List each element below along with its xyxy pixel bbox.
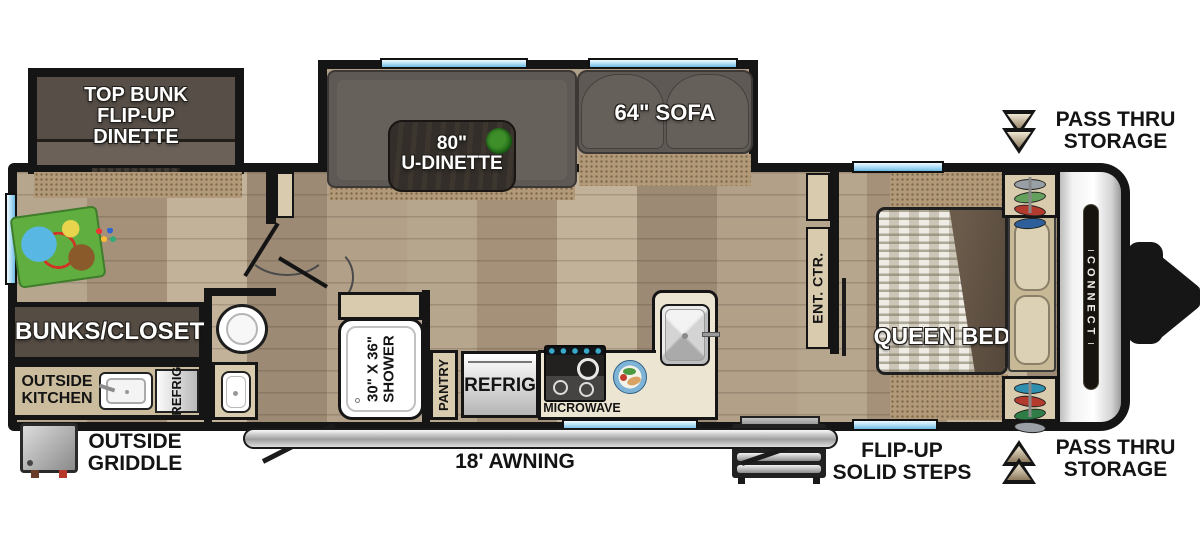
bedroom-carpet-bottom	[890, 374, 1008, 420]
bunks-closet-label: BUNKS/CLOSET	[15, 320, 199, 345]
sofa-label: 64" SOFA	[579, 102, 751, 125]
bath-wall-right	[422, 290, 430, 422]
queen-bed-label: QUEEN BED	[862, 325, 1022, 349]
arrow-up-icon	[1002, 458, 1036, 484]
pantry: PANTRY	[430, 350, 458, 420]
bath-vanity	[212, 362, 258, 420]
window-dinette	[380, 58, 528, 69]
mat-confetti	[96, 228, 116, 244]
queen-bed	[876, 207, 1008, 375]
play-mat	[9, 205, 106, 289]
bedroom-wall	[830, 172, 839, 354]
burner-small-icon	[579, 382, 594, 397]
wardrobe-top	[1002, 172, 1058, 218]
wardrobe-pole-icon	[1029, 177, 1032, 213]
pillow	[1014, 221, 1050, 291]
outside-refrig: REFRIG	[155, 369, 199, 413]
steps-label: FLIP-UP SOLID STEPS	[832, 440, 972, 484]
bath-sink	[221, 371, 251, 413]
sofa: 64" SOFA	[577, 70, 753, 154]
outside-sink	[99, 372, 153, 410]
pantry-label: PANTRY	[437, 359, 451, 411]
burner-small-icon	[553, 380, 568, 395]
bath-wall-top	[204, 288, 276, 296]
plant-icon	[486, 128, 512, 154]
outside-kitchen: OUTSIDE KITCHEN REFRIG	[10, 362, 204, 420]
awning-label: 18' AWNING	[440, 451, 590, 473]
pillow	[1014, 295, 1050, 365]
brand-badge: CONNECT	[1083, 204, 1099, 390]
ent-ctr-cabinet: ENT. CTR.	[806, 227, 830, 349]
outside-kitchen-label: OUTSIDE KITCHEN	[19, 374, 95, 407]
pass-thru-storage-label-top: PASS THRU STORAGE	[1038, 109, 1193, 153]
kitchen-faucet-icon	[702, 332, 720, 337]
wardrobe-bottom	[1002, 376, 1058, 422]
burner-large-icon	[577, 358, 599, 380]
bunk-carpet	[34, 172, 242, 198]
dinette-table: 80" U-DINETTE	[388, 120, 516, 192]
stove	[544, 345, 606, 402]
floorplan-canvas: TOP BUNK FLIP-UP DINETTE 64" SOFA 80" U-…	[0, 0, 1200, 555]
front-cap: CONNECT	[1057, 172, 1121, 422]
bunk-label: TOP BUNK FLIP-UP DINETTE	[37, 85, 235, 147]
outside-refrig-label: REFRIG	[170, 366, 184, 415]
toilet	[216, 304, 268, 354]
bedroom-wall-ledge	[842, 278, 846, 356]
shower-label: 30" X 36" SHOWER	[365, 335, 396, 403]
window-bedroom-top	[852, 161, 944, 173]
kitchen-sink	[660, 304, 710, 366]
awning-tube	[243, 428, 838, 449]
wardrobe-pole-icon	[1029, 381, 1032, 417]
shower-cabinet	[338, 292, 422, 320]
hall-cabinet	[276, 172, 294, 218]
ent-ctr-upper-cabinet	[806, 173, 830, 221]
food-plate-icon	[613, 360, 647, 394]
griddle-label: OUTSIDE GRIDDLE	[80, 431, 190, 475]
stove-knobs	[546, 347, 604, 355]
pass-thru-storage-label-bottom: PASS THRU STORAGE	[1038, 437, 1193, 481]
bath-wall-left	[204, 288, 212, 422]
kitchen-refrig-label: REFRIG	[464, 376, 536, 396]
hitch-coupler	[1192, 286, 1200, 308]
outside-griddle	[20, 423, 78, 473]
bunks-closet: BUNKS/CLOSET	[10, 302, 204, 362]
brand-badge-text: CONNECT	[1085, 256, 1097, 338]
ent-ctr-label: ENT. CTR.	[811, 252, 826, 323]
window-bedroom-bottom	[852, 419, 938, 431]
kitchen-refrig: REFRIG	[461, 351, 539, 418]
bunk-slideout: TOP BUNK FLIP-UP DINETTE	[28, 68, 244, 174]
window-sofa	[588, 58, 738, 69]
microwave-label: MICROWAVE	[542, 402, 622, 415]
shower-drain-icon	[355, 398, 360, 403]
arrow-down-icon	[1002, 128, 1036, 154]
shower: 30" X 36" SHOWER	[338, 318, 424, 420]
sofa-carpet	[579, 154, 751, 186]
bed-headboard	[1008, 214, 1056, 372]
